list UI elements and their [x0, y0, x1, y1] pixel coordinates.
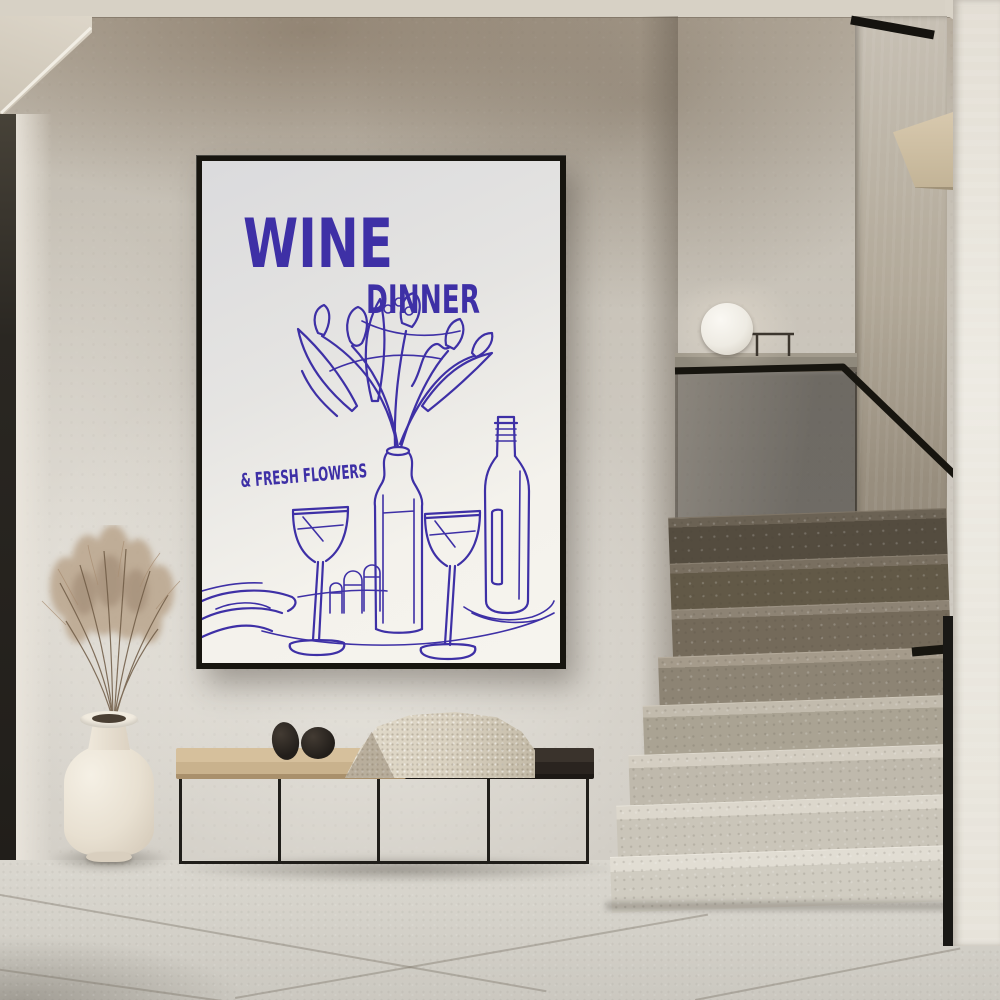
poster-title: WINE: [243, 205, 393, 284]
stairs-base-shadow: [606, 902, 950, 910]
poster-frame: WINE DINNER & FRESH FLOWERS: [196, 155, 566, 669]
bench-leg: [377, 779, 380, 861]
wall-light-sliver: [16, 114, 52, 862]
pampas-grass: [18, 525, 208, 725]
ceiling: [0, 0, 953, 17]
bench-leg: [487, 779, 490, 861]
wine-glass-left: [290, 507, 348, 655]
ceramic-vase-body: [64, 744, 154, 856]
poster-tagline: & FRESH FLOWERS: [240, 460, 368, 492]
decor-stone: [301, 727, 335, 759]
staircase-steps: [598, 508, 960, 916]
ceramic-vase-foot: [86, 852, 132, 862]
poster-artwork: WINE DINNER & FRESH FLOWERS: [202, 161, 560, 663]
sphere-lamp: [701, 303, 753, 355]
glass-balustrade: [675, 372, 857, 518]
poster-paper: WINE DINNER & FRESH FLOWERS: [202, 161, 560, 663]
wine-bottle-sketch: [464, 417, 554, 622]
wine-glass-right: [421, 511, 480, 659]
bench-leg: [278, 779, 281, 861]
candle-votives-sketch: [330, 565, 380, 613]
right-wall-column: [953, 0, 1000, 946]
bench-metal-frame: [179, 776, 589, 864]
interior-scene: WINE DINNER & FRESH FLOWERS: [0, 0, 1000, 1000]
door-frame-edge: [0, 114, 16, 862]
vase-sketch: [375, 447, 422, 633]
plates-and-table-sketch: [202, 583, 554, 645]
vase-opening: [92, 714, 126, 723]
